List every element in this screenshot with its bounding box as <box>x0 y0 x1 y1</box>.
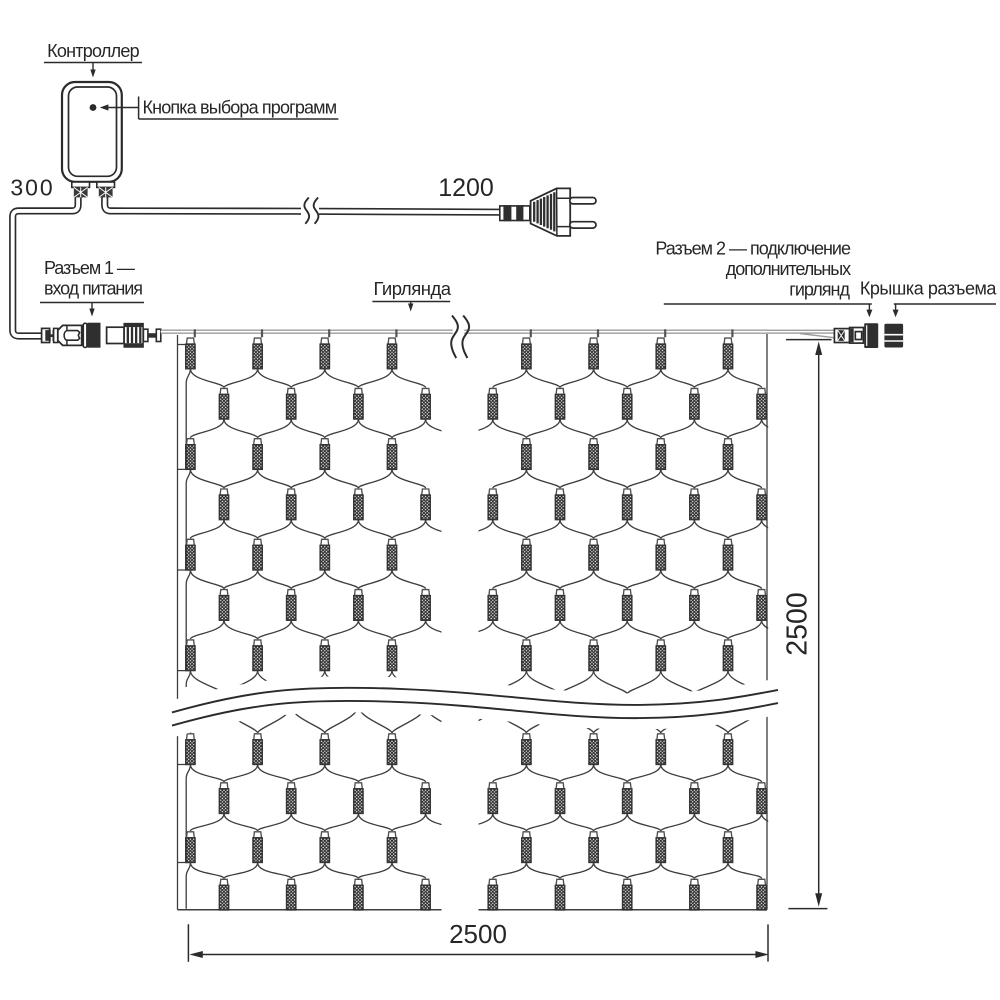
svg-text:300: 300 <box>10 175 54 201</box>
svg-text:Контроллер: Контроллер <box>47 41 140 61</box>
svg-text:дополнительных: дополнительных <box>726 259 851 279</box>
svg-text:Разъем 2 — подключение: Разъем 2 — подключение <box>655 239 851 259</box>
svg-text:Крышка разъема: Крышка разъема <box>860 279 998 299</box>
svg-text:Разъем 1 —: Разъем 1 — <box>44 258 135 278</box>
svg-text:1200: 1200 <box>438 174 494 202</box>
svg-text:вход питания: вход питания <box>44 279 142 299</box>
svg-text:2500: 2500 <box>449 919 507 949</box>
svg-text:гирлянд: гирлянд <box>789 280 850 300</box>
svg-text:Гирлянда: Гирлянда <box>373 278 451 299</box>
svg-text:2500: 2500 <box>782 592 814 655</box>
svg-text:Кнопка выбора программ: Кнопка выбора программ <box>143 98 337 118</box>
